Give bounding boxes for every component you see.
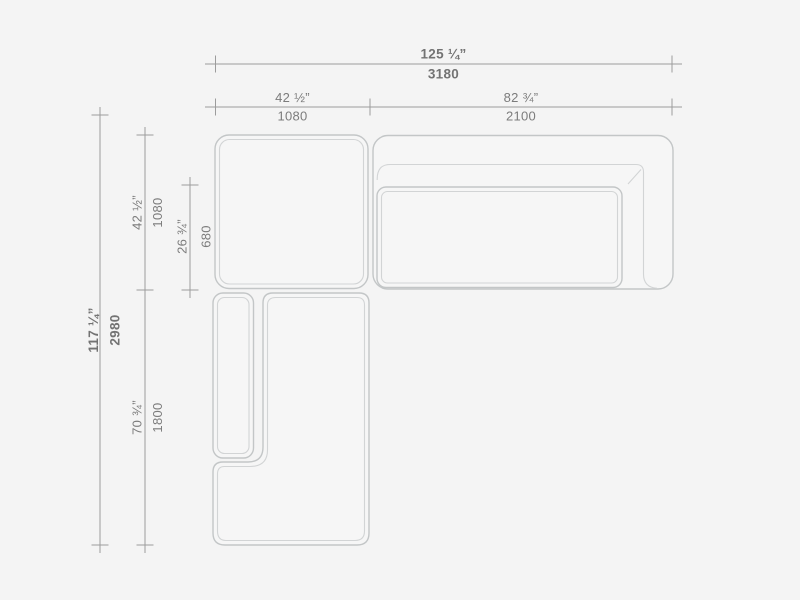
- corner-module: [215, 135, 368, 289]
- dim-top-right-width-mm-label: 2100: [506, 109, 536, 124]
- dim-overall-height-mm-label: 2980: [108, 314, 123, 345]
- sofa-dimension-drawing: 125 ¼” 3180 42 ½” 1080 82 ¾” 2100 117 ¼”…: [0, 0, 800, 600]
- dim-inner-depth: 26 ¾” 680: [175, 177, 214, 298]
- dim-top-left-width-inches-label: 42 ½”: [275, 90, 310, 105]
- sofa-module: [373, 136, 673, 290]
- dim-inner-left-height-inches-label: 26 ¾”: [175, 219, 190, 254]
- dim-top-segments: 42 ½” 1080 82 ¾” 2100: [205, 90, 682, 124]
- drawing-canvas: 125 ¼” 3180 42 ½” 1080 82 ¾” 2100 117 ¼”…: [0, 0, 800, 600]
- corner-module-outline: [215, 135, 368, 289]
- chaise-module: [213, 293, 369, 545]
- chaise-armrest-outline: [213, 293, 254, 458]
- dim-top-left-width-mm-label: 1080: [277, 109, 307, 124]
- dim-overall-height-inches-label: 117 ¼”: [86, 307, 101, 352]
- dim-overall-width-inches-label: 125 ¼”: [420, 47, 466, 62]
- furniture-group: [213, 135, 673, 545]
- dim-lower-left-height-inches-label: 70 ¾”: [130, 400, 145, 435]
- dim-lower-left-height-mm-label: 1800: [150, 402, 165, 432]
- dim-upper-left-height-inches-label: 42 ½”: [130, 195, 145, 230]
- dim-upper-left-height-mm-label: 1080: [150, 197, 165, 227]
- sofa-seat-cushion-outline: [377, 187, 622, 288]
- dim-overall-width: 125 ¼” 3180: [205, 47, 682, 82]
- dim-overall-height: 117 ¼” 2980: [86, 107, 123, 553]
- dim-inner-left-height-mm-label: 680: [199, 225, 214, 248]
- dim-top-right-width-inches-label: 82 ¾”: [504, 90, 539, 105]
- dim-left-segments: 42 ½” 1080 70 ¾” 1800: [130, 127, 166, 553]
- dim-overall-width-mm-label: 3180: [428, 67, 459, 82]
